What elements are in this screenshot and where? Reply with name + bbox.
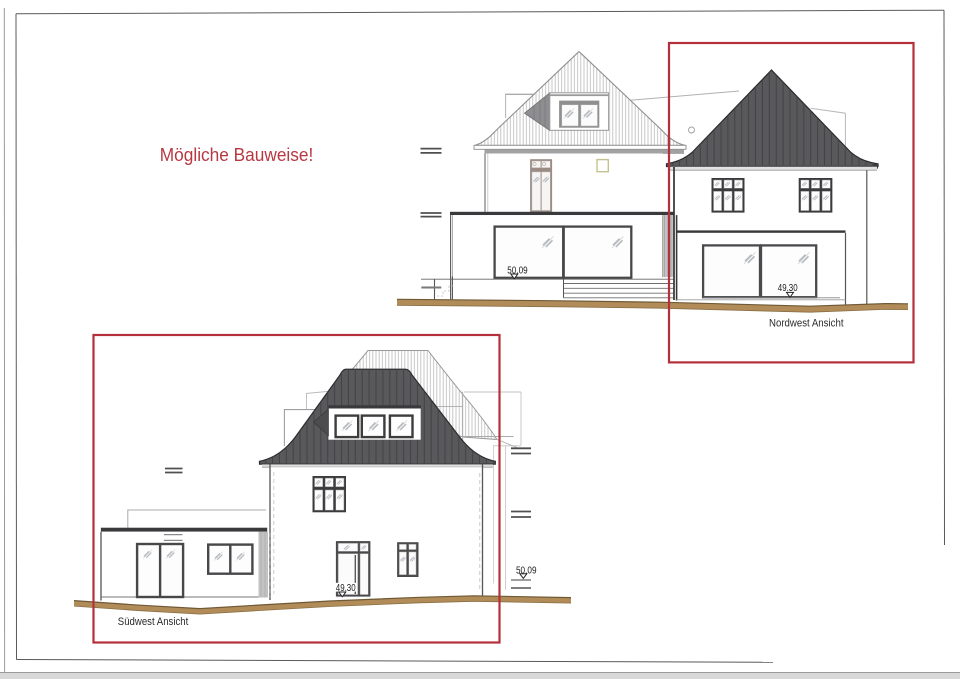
svg-text:Mögliche Bauweise!: Mögliche Bauweise! xyxy=(160,145,313,165)
svg-text:Südwest Ansicht: Südwest Ansicht xyxy=(118,616,189,628)
svg-text:Nordwest Ansicht: Nordwest Ansicht xyxy=(769,318,844,330)
